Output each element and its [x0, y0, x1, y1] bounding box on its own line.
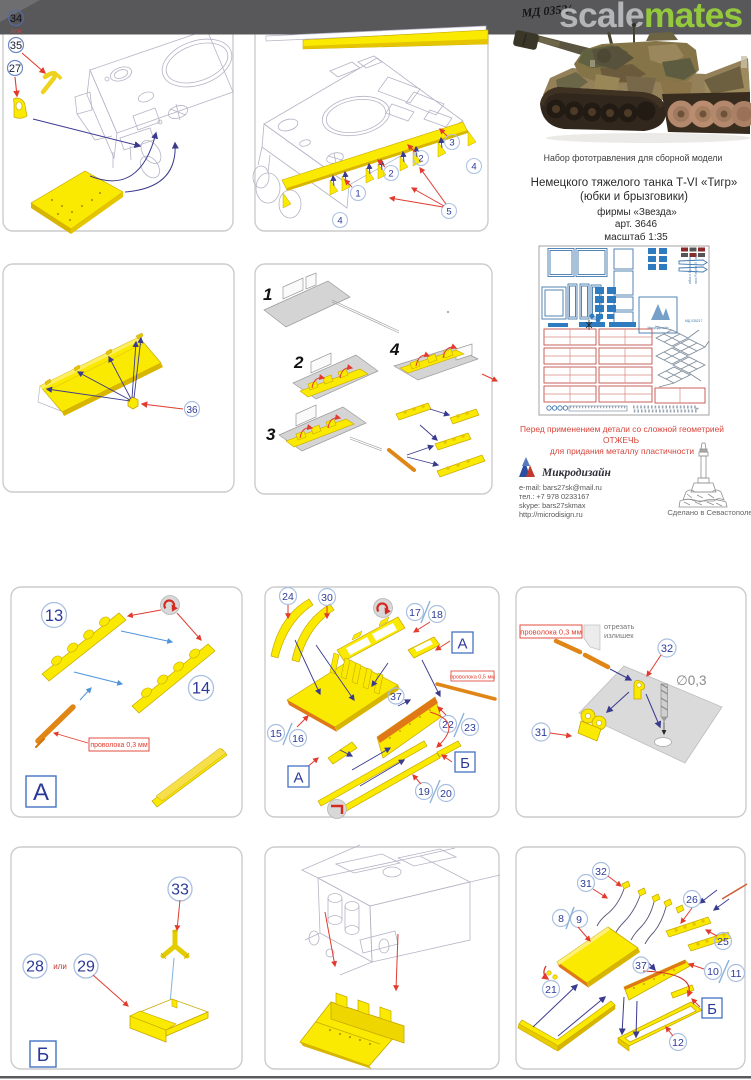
svg-text:14: 14	[192, 680, 210, 698]
svg-text:тел.: +7 978 0233167: тел.: +7 978 0233167	[519, 492, 589, 501]
svg-text:1: 1	[355, 189, 360, 200]
svg-text:11: 11	[731, 968, 742, 980]
svg-text:33: 33	[171, 882, 189, 899]
svg-text:34: 34	[10, 13, 22, 25]
svg-text:А: А	[457, 636, 467, 653]
svg-text:e-mail: bars27sk@mail.ru: e-mail: bars27sk@mail.ru	[519, 483, 602, 492]
svg-text:проволока 0,3 мм: проволока 0,3 мм	[520, 628, 581, 637]
svg-text:масштаб 1:35: масштаб 1:35	[604, 231, 668, 243]
svg-text:13: 13	[45, 607, 63, 625]
svg-text:2: 2	[293, 353, 304, 372]
svg-text:(юбки и брызговики): (юбки и брызговики)	[580, 191, 688, 203]
svg-text:3: 3	[266, 425, 276, 444]
svg-text:1: 1	[263, 285, 272, 304]
svg-text:20: 20	[440, 788, 452, 800]
svg-text:А: А	[293, 770, 303, 787]
svg-text:8: 8	[558, 913, 564, 925]
svg-text:Набор фототравления для сборно: Набор фототравления для сборной модели	[544, 153, 723, 163]
svg-text:4: 4	[389, 340, 400, 359]
svg-text:skype: bars27skmax: skype: bars27skmax	[519, 501, 586, 510]
svg-text:излишек: излишек	[604, 631, 634, 640]
svg-text:4: 4	[471, 162, 476, 173]
svg-text:31: 31	[580, 878, 592, 890]
svg-text:19: 19	[418, 786, 430, 798]
svg-text:5: 5	[446, 207, 451, 218]
svg-text:28: 28	[26, 959, 44, 976]
svg-text:32: 32	[595, 866, 607, 878]
svg-text:27: 27	[9, 63, 21, 75]
svg-text:Б: Б	[460, 755, 470, 772]
svg-text:А: А	[33, 779, 49, 806]
svg-text:3: 3	[449, 138, 454, 149]
svg-text:4: 4	[337, 216, 342, 227]
svg-text:арт. 3646: арт. 3646	[615, 219, 658, 230]
svg-text:Немецкого тяжелого танка Т-VI: Немецкого тяжелого танка Т-VI «Тигр»	[531, 177, 738, 189]
svg-text:15: 15	[270, 728, 282, 740]
svg-text:18: 18	[431, 609, 443, 621]
svg-text:26: 26	[686, 894, 698, 906]
svg-text:35: 35	[10, 40, 22, 52]
svg-text:http://microdisign.ru: http://microdisign.ru	[519, 510, 583, 519]
svg-text:36: 36	[186, 405, 198, 416]
svg-text:ОТЖЕЧЬ: ОТЖЕЧЬ	[603, 435, 640, 445]
svg-text:или: или	[10, 28, 21, 35]
svg-text:9: 9	[576, 914, 582, 926]
svg-text:2: 2	[418, 154, 423, 165]
svg-text:29: 29	[77, 959, 95, 976]
svg-text:танк PzKpfw VI Тигр: танк PzKpfw VI Тигр	[694, 254, 698, 284]
svg-text:или: или	[53, 962, 67, 971]
svg-text:23: 23	[464, 722, 476, 734]
svg-text:32: 32	[661, 643, 673, 655]
svg-text:2: 2	[388, 169, 393, 180]
svg-text:16: 16	[292, 733, 304, 745]
svg-text:Б: Б	[37, 1045, 49, 1066]
svg-text:для придания металлу пластично: для придания металлу пластичности	[550, 446, 694, 456]
svg-text:10: 10	[707, 966, 719, 978]
svg-text:17: 17	[409, 607, 421, 619]
svg-text:Б: Б	[707, 1001, 717, 1018]
svg-text:∅0,3: ∅0,3	[676, 673, 707, 688]
svg-text:Микродизайн: Микродизайн	[541, 466, 612, 479]
svg-text:scalemates: scalemates	[559, 0, 743, 35]
svg-text:отрезать: отрезать	[604, 622, 634, 631]
svg-text:24: 24	[282, 591, 294, 603]
svg-text:проволока 0,3 мм: проволока 0,3 мм	[90, 742, 148, 749]
svg-text:Перед применением детали со сл: Перед применением детали со сложной геом…	[520, 424, 724, 434]
svg-text:37: 37	[390, 691, 402, 703]
svg-text:25: 25	[717, 936, 729, 948]
svg-text:фирмы «Звезда»: фирмы «Звезда»	[597, 206, 677, 218]
svg-text:21: 21	[545, 984, 557, 996]
svg-text:37: 37	[635, 960, 647, 972]
svg-text:30: 30	[321, 592, 333, 604]
svg-text:31: 31	[535, 727, 547, 739]
svg-text:12: 12	[672, 1037, 684, 1049]
svg-text:Сделано в Севастополе: Сделано в Севастополе	[667, 508, 751, 517]
svg-text:МД 035217: МД 035217	[685, 319, 702, 323]
svg-text:юбки и брызговики: юбки и брызговики	[688, 256, 692, 284]
svg-text:проволока 0,5 мм: проволока 0,5 мм	[450, 675, 495, 681]
